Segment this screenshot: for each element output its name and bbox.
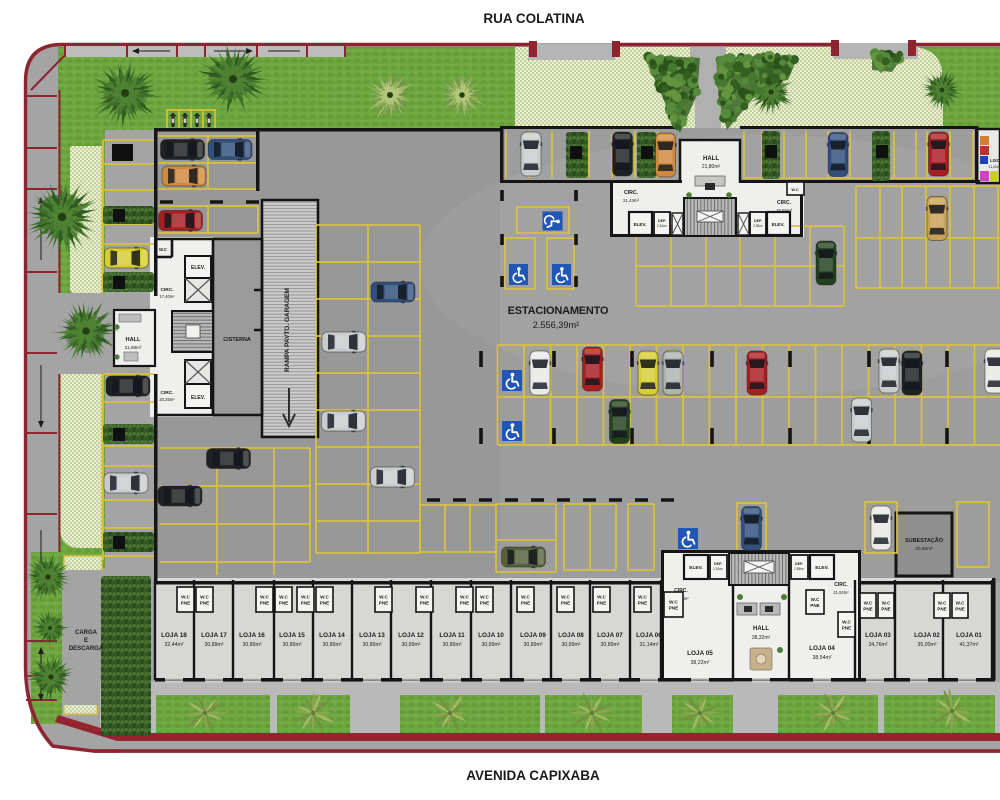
svg-text:PNE: PNE: [810, 603, 819, 608]
svg-text:W.C: W.C: [956, 601, 965, 606]
svg-text:W.C: W.C: [811, 597, 820, 602]
svg-text:LOJA 15: LOJA 15: [279, 632, 305, 639]
svg-text:PNE: PNE: [460, 601, 469, 606]
svg-text:30,89m²: 30,89m²: [523, 642, 542, 648]
svg-text:2.556,39m²: 2.556,39m²: [533, 320, 579, 330]
svg-text:2,55m²: 2,55m²: [794, 567, 804, 571]
svg-text:41,37m²: 41,37m²: [959, 642, 978, 648]
svg-text:21,43m²: 21,43m²: [623, 198, 640, 203]
svg-text:30,89m²: 30,89m²: [322, 642, 341, 648]
svg-text:34,76m²: 34,76m²: [868, 642, 887, 648]
svg-text:SUBESTAÇÃO: SUBESTAÇÃO: [905, 537, 944, 544]
svg-text:DESCARGA: DESCARGA: [69, 646, 104, 652]
svg-text:CARGA: CARGA: [75, 630, 98, 636]
svg-text:W.C: W.C: [420, 595, 429, 600]
svg-text:W.C: W.C: [301, 595, 310, 600]
svg-text:ELEV.: ELEV.: [634, 222, 647, 227]
svg-text:PNE: PNE: [521, 601, 530, 606]
svg-text:DEP.: DEP.: [754, 219, 762, 223]
svg-text:PNE: PNE: [379, 601, 388, 606]
svg-text:W.C: W.C: [260, 595, 269, 600]
svg-text:PNE: PNE: [301, 601, 310, 606]
svg-text:W.C: W.C: [638, 595, 647, 600]
svg-text:PNE: PNE: [320, 601, 329, 606]
svg-text:PNE: PNE: [955, 607, 964, 612]
svg-text:31,14m²: 31,14m²: [639, 642, 658, 648]
svg-text:W.C: W.C: [181, 595, 190, 600]
svg-text:30,89m²: 30,89m²: [442, 642, 461, 648]
svg-text:35,00m²: 35,00m²: [917, 642, 936, 648]
svg-text:LOJA 14: LOJA 14: [319, 632, 345, 639]
svg-text:LOJA 10: LOJA 10: [478, 632, 504, 639]
svg-text:30,89m²: 30,89m²: [481, 642, 500, 648]
svg-text:2,51m²: 2,51m²: [713, 567, 723, 571]
svg-text:PNE: PNE: [881, 607, 890, 612]
svg-text:32,44m²: 32,44m²: [164, 642, 183, 648]
svg-text:17,40m²: 17,40m²: [159, 294, 175, 299]
svg-text:LOJA 05: LOJA 05: [687, 650, 713, 657]
svg-text:PNE: PNE: [420, 601, 429, 606]
svg-text:W.C: W.C: [460, 595, 469, 600]
svg-text:2,55m²: 2,55m²: [753, 224, 763, 228]
svg-text:LIXO: LIXO: [990, 158, 1000, 163]
svg-text:W.C: W.C: [669, 600, 678, 605]
svg-text:20,50m²: 20,50m²: [915, 546, 933, 552]
svg-text:PNE: PNE: [669, 606, 678, 611]
svg-text:HALL: HALL: [703, 156, 719, 162]
svg-text:CIRC.: CIRC.: [160, 287, 173, 293]
svg-text:CIRC.: CIRC.: [624, 190, 639, 196]
svg-text:W.C: W.C: [279, 595, 288, 600]
svg-text:LOJA 03: LOJA 03: [865, 632, 891, 639]
svg-text:38,32m²: 38,32m²: [752, 635, 771, 641]
svg-text:LOJA 01: LOJA 01: [956, 632, 982, 639]
svg-text:W.C: W.C: [597, 595, 606, 600]
svg-text:LOJA 17: LOJA 17: [201, 632, 227, 639]
svg-text:CIRC.: CIRC.: [160, 390, 173, 396]
svg-text:PNE: PNE: [561, 601, 570, 606]
svg-text:W.C: W.C: [379, 595, 388, 600]
svg-text:30,89m²: 30,89m²: [561, 642, 580, 648]
svg-text:2,51m²: 2,51m²: [657, 224, 667, 228]
svg-text:RUA COLATINA: RUA COLATINA: [483, 11, 584, 26]
svg-text:W.C: W.C: [200, 595, 209, 600]
svg-text:DEP.: DEP.: [795, 562, 803, 566]
svg-text:11,20m²: 11,20m²: [989, 165, 1000, 169]
svg-text:LOJA 16: LOJA 16: [239, 632, 265, 639]
svg-text:30,89m²: 30,89m²: [282, 642, 301, 648]
svg-text:DEP.: DEP.: [658, 219, 666, 223]
svg-text:PNE: PNE: [863, 607, 872, 612]
svg-text:W.C: W.C: [938, 601, 947, 606]
svg-text:30,89m²: 30,89m²: [600, 642, 619, 648]
svg-text:LOJA 07: LOJA 07: [597, 632, 623, 639]
svg-text:PNE: PNE: [181, 601, 190, 606]
svg-text:21,80m²: 21,80m²: [702, 164, 721, 170]
svg-text:CIRC.: CIRC.: [834, 582, 848, 588]
svg-text:LOJA 12: LOJA 12: [398, 632, 424, 639]
svg-text:LOJA 08: LOJA 08: [558, 632, 584, 639]
svg-text:W.C: W.C: [882, 601, 891, 606]
svg-text:LOJA 04: LOJA 04: [809, 645, 835, 652]
svg-text:W.C: W.C: [480, 595, 489, 600]
svg-text:PNE: PNE: [638, 601, 647, 606]
svg-text:21,58m²: 21,58m²: [125, 345, 142, 350]
svg-text:W.C: W.C: [864, 601, 873, 606]
svg-text:AVENIDA CAPIXABA: AVENIDA CAPIXABA: [466, 768, 600, 783]
svg-text:30,89m²: 30,89m²: [401, 642, 420, 648]
svg-text:21,92m²: 21,92m²: [833, 590, 849, 595]
svg-text:30,89m²: 30,89m²: [242, 642, 261, 648]
svg-text:LOJA 09: LOJA 09: [520, 632, 546, 639]
svg-text:38,22m²: 38,22m²: [690, 660, 709, 666]
svg-text:W.C: W.C: [791, 188, 798, 192]
svg-text:PNE: PNE: [260, 601, 269, 606]
svg-text:38,54m²: 38,54m²: [812, 655, 831, 661]
svg-text:PNE: PNE: [937, 607, 946, 612]
svg-text:LOJA 18: LOJA 18: [161, 632, 187, 639]
svg-text:ELEV.: ELEV.: [815, 565, 828, 571]
svg-text:W.C: W.C: [320, 595, 329, 600]
svg-text:PNE: PNE: [480, 601, 489, 606]
svg-text:LOJA 06: LOJA 06: [636, 632, 662, 639]
svg-text:30,89m²: 30,89m²: [362, 642, 381, 648]
svg-text:PNE: PNE: [200, 601, 209, 606]
svg-text:E: E: [84, 638, 88, 644]
svg-text:W.C: W.C: [842, 620, 851, 625]
svg-text:20,25m²: 20,25m²: [159, 397, 175, 402]
svg-text:PNE: PNE: [279, 601, 288, 606]
svg-text:30,89m²: 30,89m²: [204, 642, 223, 648]
svg-text:W.C: W.C: [521, 595, 530, 600]
svg-text:ELEV.: ELEV.: [191, 265, 206, 271]
svg-text:LOJA 11: LOJA 11: [439, 632, 465, 639]
svg-text:LOJA 02: LOJA 02: [914, 632, 940, 639]
svg-text:DEP.: DEP.: [714, 562, 722, 566]
svg-text:PNE: PNE: [597, 601, 606, 606]
svg-text:PNE: PNE: [842, 626, 851, 631]
svg-text:HALL: HALL: [753, 626, 769, 632]
svg-text:ESTACIONAMENTO: ESTACIONAMENTO: [508, 305, 609, 317]
svg-text:LOJA 13: LOJA 13: [359, 632, 385, 639]
svg-text:ELEV.: ELEV.: [191, 395, 206, 401]
svg-text:W.C: W.C: [159, 247, 167, 252]
svg-text:W.C: W.C: [561, 595, 570, 600]
svg-text:ELEV.: ELEV.: [689, 565, 702, 571]
svg-text:CISTERNA: CISTERNA: [223, 337, 251, 343]
svg-text:CIRC.: CIRC.: [777, 200, 792, 206]
svg-text:RAMPA PAVTO. GARAGEM: RAMPA PAVTO. GARAGEM: [284, 288, 291, 372]
svg-text:HALL: HALL: [126, 337, 141, 343]
svg-text:ELEV.: ELEV.: [772, 222, 785, 227]
